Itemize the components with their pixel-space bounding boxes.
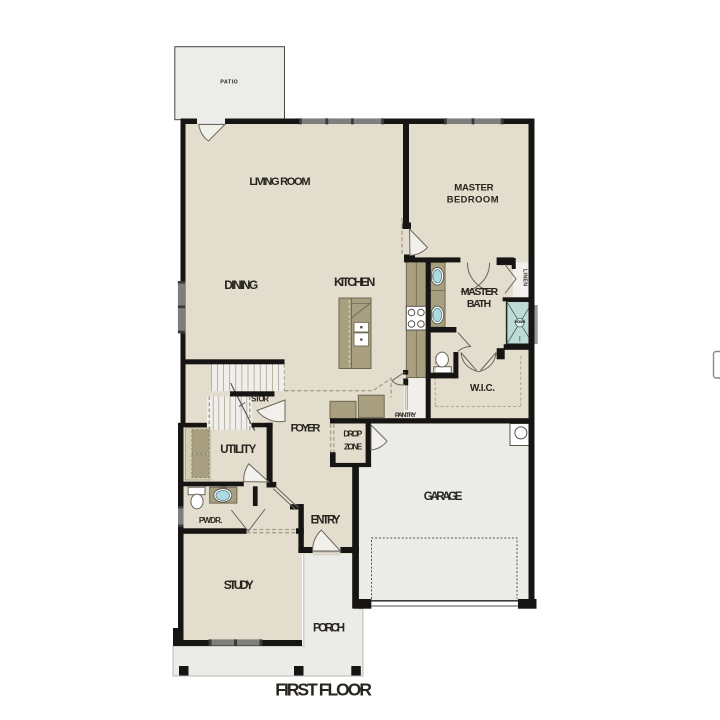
svg-text:PATIO: PATIO (220, 80, 238, 86)
svg-text:GARAGE: GARAGE (424, 491, 463, 503)
svg-text:DINING: DINING (224, 278, 258, 292)
svg-text:DROP: DROP (343, 430, 362, 439)
svg-text:STUDY: STUDY (224, 578, 254, 592)
svg-text:PORCH: PORCH (313, 622, 345, 634)
svg-text:LINEN: LINEN (521, 269, 527, 286)
svg-text:KITCHEN: KITCHEN (334, 275, 375, 289)
svg-text:ZONE: ZONE (344, 443, 363, 452)
svg-text:BEDROOM: BEDROOM (447, 194, 499, 205)
svg-text:LIVING ROOM: LIVING ROOM (249, 176, 310, 188)
svg-text:STOR: STOR (251, 394, 269, 403)
svg-text:PANTRY: PANTRY (395, 412, 417, 419)
svg-text:BATH: BATH (467, 299, 491, 310)
svg-text:W.I.C.: W.I.C. (470, 383, 495, 394)
svg-text:UTILITY: UTILITY (220, 444, 256, 456)
svg-text:SHOWER: SHOWER (514, 320, 526, 324)
svg-text:PWDR.: PWDR. (199, 516, 222, 525)
svg-text:ENTRY: ENTRY (311, 514, 341, 526)
svg-text:MASTER: MASTER (461, 287, 499, 298)
svg-text:MASTER: MASTER (454, 183, 493, 194)
svg-text:FOYER: FOYER (291, 422, 321, 434)
svg-text:FIRST FLOOR: FIRST FLOOR (275, 679, 372, 699)
